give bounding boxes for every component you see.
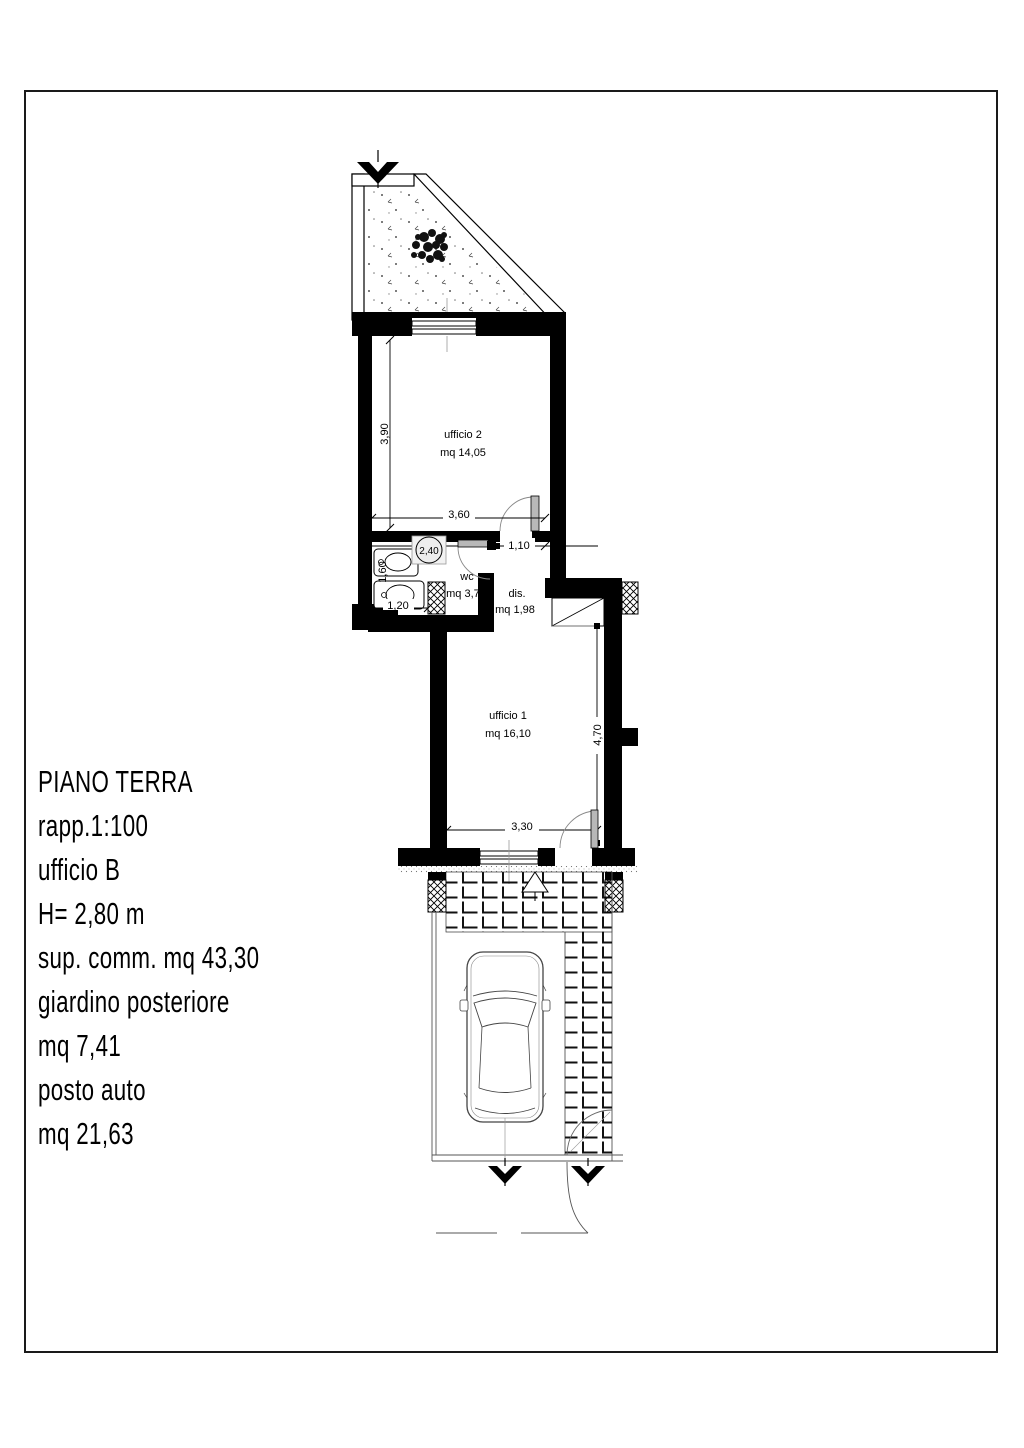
paver-walkway xyxy=(565,932,612,1155)
wall-right xyxy=(478,573,494,632)
wall-bottom-right xyxy=(592,848,635,866)
svg-text:4,70: 4,70 xyxy=(592,724,604,745)
room-area-ufficio1: mq 16,10 xyxy=(485,728,531,740)
dimension-u1-width: 3,30 xyxy=(443,820,601,834)
svg-text:1,60: 1,60 xyxy=(377,561,389,582)
room-ufficio-2: 3,90 3,60 ufficio 2 mq 14,05 xyxy=(352,312,566,545)
garden-wall-left xyxy=(352,174,364,320)
wall-left xyxy=(430,632,447,850)
street-arrow-icon-1 xyxy=(488,1158,522,1186)
room-area-wc: mq 3,73 xyxy=(446,588,486,600)
room-area-ufficio2: mq 14,05 xyxy=(440,447,486,459)
niche-window xyxy=(552,598,604,626)
wall-bottom xyxy=(368,615,493,632)
room-label-dis: dis. xyxy=(508,588,525,600)
room-label-ufficio2: ufficio 2 xyxy=(444,429,482,441)
dimension-u2-depth: 3,90 xyxy=(379,336,394,532)
room-area-dis: mq 1,98 xyxy=(495,604,535,616)
door-ufficio1 xyxy=(560,810,598,848)
door-leaf xyxy=(591,810,598,848)
door-swing-arc xyxy=(500,497,534,531)
pier-cap-right xyxy=(605,872,623,880)
room-label-wc: wc xyxy=(459,571,474,583)
insulation-hatch xyxy=(370,314,414,334)
svg-text:1,10: 1,10 xyxy=(508,540,529,552)
insulation-hatch xyxy=(622,582,638,614)
wall-left xyxy=(358,312,372,545)
parking-area xyxy=(398,866,638,1233)
door-leaf xyxy=(458,540,488,547)
floor-plan-svg: 3,90 3,60 ufficio 2 mq 14,05 xyxy=(0,0,1024,1448)
pillar-hatch xyxy=(428,582,445,614)
dimension-u2-width: 3,60 xyxy=(368,508,549,522)
wall-pier xyxy=(538,848,555,866)
street-arrow-icon-2 xyxy=(571,1158,605,1186)
wall-right xyxy=(604,578,622,860)
svg-text:3,90: 3,90 xyxy=(379,423,391,444)
svg-text:3,30: 3,30 xyxy=(511,821,532,833)
svg-text:1,20: 1,20 xyxy=(387,600,408,612)
room-wc: 2,40 1,60 1,20 wc mq 3,73 xyxy=(352,536,496,632)
pier-hatch-left xyxy=(428,880,446,912)
pier-cap-left xyxy=(428,872,446,880)
wall-bottom-left xyxy=(398,848,480,866)
wall-upper xyxy=(550,545,566,580)
room-dis: 1,10 dis. mq 1,98 xyxy=(494,538,638,860)
room-ufficio-1: 4,70 3,30 ufficio 1 mq 16,10 xyxy=(398,623,635,884)
svg-text:2,40: 2,40 xyxy=(419,546,439,557)
wall-protrusion xyxy=(622,728,638,746)
room-label-ufficio1: ufficio 1 xyxy=(489,710,527,722)
svg-text:3,60: 3,60 xyxy=(448,509,469,521)
wall-right xyxy=(550,312,566,545)
drawing-canvas: PIANO TERRA rapp.1:100 ufficio B H= 2,80… xyxy=(0,0,1024,1448)
pier-hatch-right xyxy=(605,880,623,912)
garden-ground xyxy=(366,186,552,320)
door-leaf xyxy=(531,496,539,531)
window-glass-2 xyxy=(412,329,476,334)
wall-joint xyxy=(430,840,447,850)
car-icon xyxy=(460,952,550,1122)
window-glass-1 xyxy=(412,321,476,326)
